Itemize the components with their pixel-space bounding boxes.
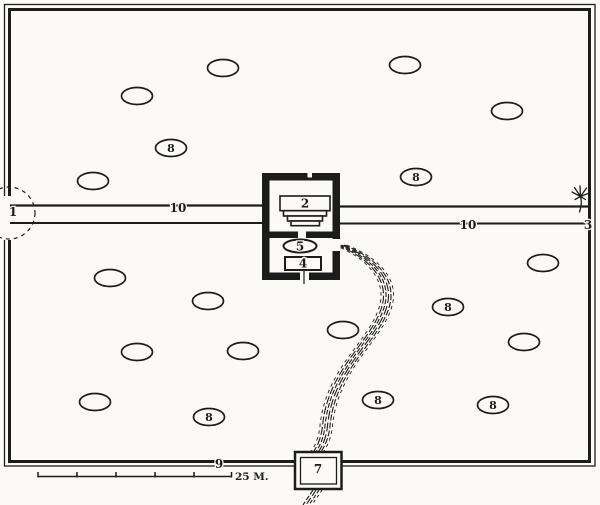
flower-beds: 888888: [78, 57, 559, 426]
palm-fronds: [572, 186, 588, 200]
scale-bar-label: 25 M.: [235, 471, 269, 483]
flower-bed-label: 8: [489, 399, 497, 412]
top-wall-opening: [308, 172, 313, 178]
scale-bar: 25 M.: [38, 471, 269, 483]
flower-bed: [78, 173, 109, 190]
site-plan-figure: 888888: [0, 0, 600, 505]
flower-bed: [122, 344, 153, 361]
palm-tree-icon: [572, 186, 588, 212]
flower-bed-label: 8: [205, 411, 213, 424]
flower-bed: [208, 60, 239, 77]
label-gatehouse: 7: [314, 462, 322, 476]
label-platform: 2: [301, 197, 309, 211]
label-avenue-right: 10: [460, 218, 477, 232]
flower-bed: [80, 394, 111, 411]
flower-bed: [528, 255, 559, 272]
flower-bed: [228, 343, 259, 360]
flower-bed: [328, 322, 359, 339]
flower-bed-label: 8: [444, 301, 452, 314]
label-entrance: 1: [9, 205, 17, 219]
road-stub: [303, 490, 322, 505]
flower-bed: [390, 57, 421, 74]
platform-step-4: [291, 221, 320, 226]
palm-trunk: [580, 197, 582, 213]
flower-bed: [193, 293, 224, 310]
flower-bed-label: 8: [167, 142, 175, 155]
divider-wall-right: [306, 232, 333, 239]
flower-bed: [122, 88, 153, 105]
flower-bed-label: 8: [374, 394, 382, 407]
flower-bed-label: 8: [412, 171, 420, 184]
plan-drawing: 888888: [0, 0, 600, 505]
divider-wall-left: [270, 232, 299, 239]
label-basin: 5: [296, 240, 304, 254]
label-tank: 4: [299, 257, 307, 271]
right-wall-opening: [332, 239, 341, 251]
label-avenue-left: 10: [170, 201, 187, 215]
flower-bed: [492, 103, 523, 120]
label-tree-gate: 3: [584, 218, 592, 232]
flower-bed: [95, 270, 126, 287]
flower-bed: [509, 334, 540, 351]
label-wall: 9: [215, 457, 223, 471]
